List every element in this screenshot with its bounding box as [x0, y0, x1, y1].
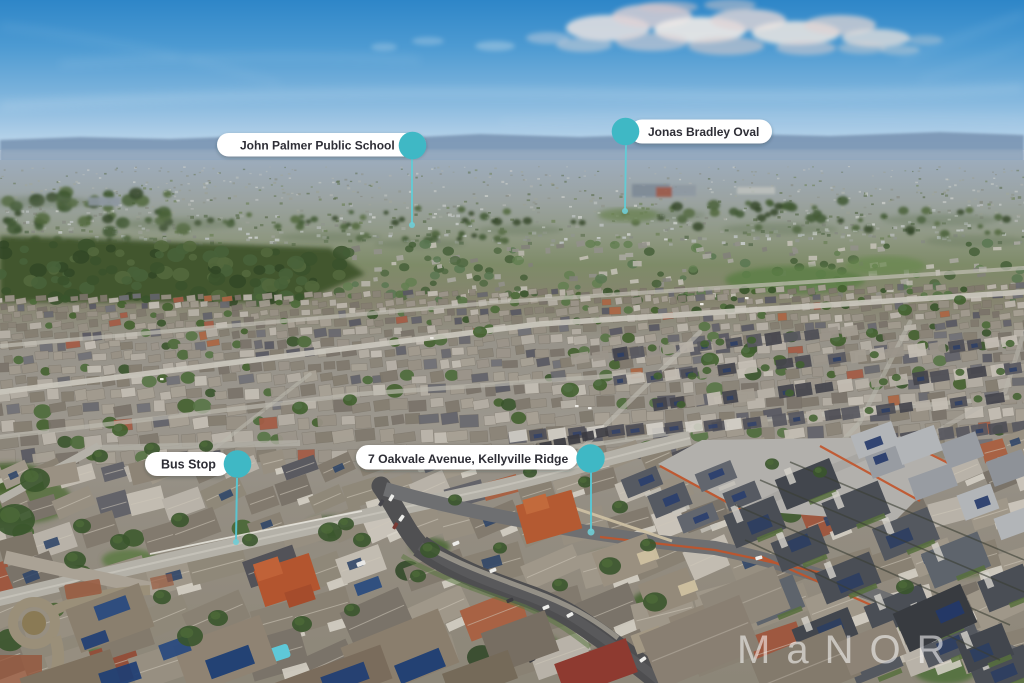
svg-text:Jonas Bradley Oval: Jonas Bradley Oval	[648, 125, 759, 139]
svg-text:Bus Stop: Bus Stop	[161, 458, 216, 472]
svg-text:MaNOR: MaNOR	[737, 628, 961, 672]
svg-text:7 Oakvale Avenue, Kellyville R: 7 Oakvale Avenue, Kellyville Ridge	[368, 452, 569, 466]
svg-text:John Palmer Public School: John Palmer Public School	[240, 139, 395, 153]
